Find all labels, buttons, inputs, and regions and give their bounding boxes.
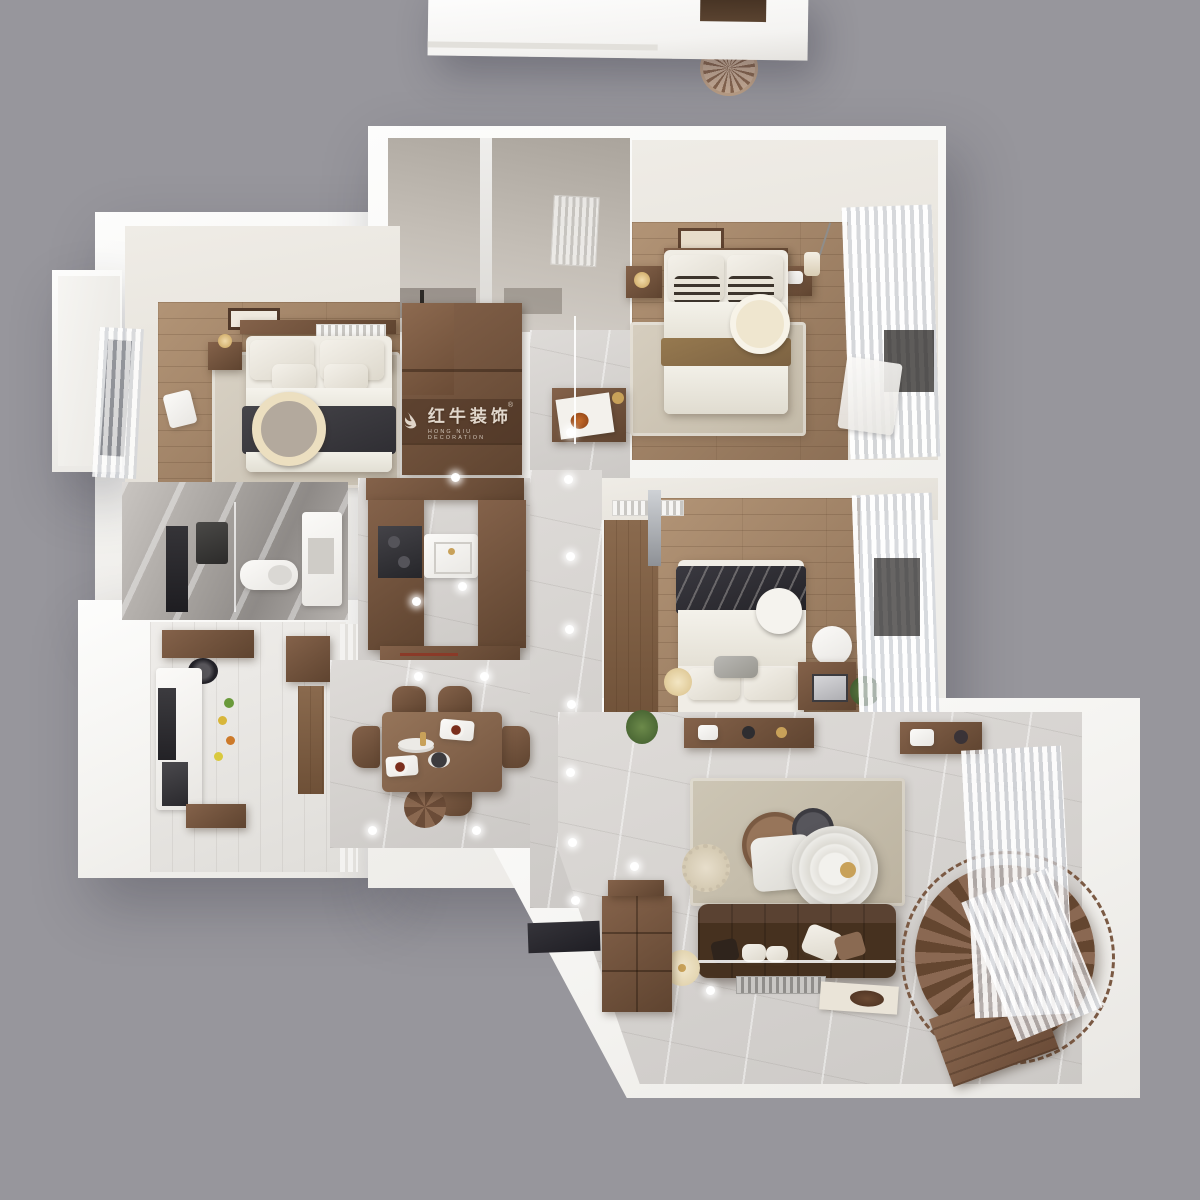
bedroom1-bed <box>244 334 394 474</box>
dining-chair <box>392 686 426 714</box>
downlight-dot <box>568 838 577 847</box>
downlight-dot <box>472 826 481 835</box>
gold-faucet <box>448 548 455 555</box>
light-streak <box>698 960 896 963</box>
downlight-dot <box>412 597 421 606</box>
brand-watermark: 红牛装饰® HONG NIU DECORATION <box>402 399 522 443</box>
shelf-divider <box>636 896 638 1012</box>
hanging-lamp-cord <box>574 316 576 444</box>
dining-chair <box>502 726 530 768</box>
shelf-red-bar <box>400 653 458 656</box>
utility-tall-cabinet <box>298 686 324 794</box>
nightstand-photo <box>786 271 803 284</box>
shelf-cabinet-top-box <box>608 880 664 896</box>
console-art-print <box>555 392 614 439</box>
dark-doormat <box>527 921 600 953</box>
dinner-plate <box>392 759 408 775</box>
bench-gold-decor <box>776 727 787 738</box>
bedroom2-floor-lamp <box>664 668 692 696</box>
utility-right-cabinet <box>286 636 330 682</box>
fruit-green <box>224 698 234 708</box>
bathroom-window <box>166 526 188 612</box>
burner <box>398 556 410 568</box>
fruit-orange <box>226 736 235 745</box>
downlight-dot <box>458 582 467 591</box>
downlight-dot <box>414 672 423 681</box>
downlight-dot <box>566 428 575 437</box>
laptop <box>812 674 848 702</box>
art-mat-brown-motif <box>849 989 884 1007</box>
sink-basin <box>434 542 472 574</box>
bed-striped-pillow <box>674 276 720 304</box>
wardrobe-door-lines <box>402 443 522 445</box>
round-swivel-chair <box>792 826 878 912</box>
kitchen-sink <box>424 534 478 578</box>
fruit-yellow <box>218 716 227 725</box>
sofa <box>698 904 896 978</box>
watermark-brand-en: HONG NIU DECORATION <box>428 429 522 441</box>
dining-chair-round <box>404 786 446 828</box>
shower-glass-line <box>234 502 236 612</box>
vanity-counter <box>308 538 334 574</box>
utility-window <box>158 688 176 760</box>
art-orange-motif <box>570 412 590 430</box>
wardrobe-top-panel <box>402 303 454 395</box>
downlight-dot <box>706 986 715 995</box>
master-bed <box>664 250 788 414</box>
burner <box>388 536 400 548</box>
registered-mark: ® <box>508 402 513 409</box>
console-dark-ball <box>954 730 968 744</box>
console-vase <box>612 392 624 404</box>
bay-window-curtain <box>92 327 144 479</box>
bed-round-pillow <box>756 588 802 634</box>
upper-stairwell-opening <box>700 0 766 22</box>
floorplan-render: 红牛装饰® HONG NIU DECORATION <box>0 0 1200 1200</box>
desk-chair <box>812 626 852 666</box>
upper-floor-slab <box>428 0 809 61</box>
dining-chair <box>352 726 380 768</box>
bedroom1-table-lamp <box>218 334 232 348</box>
bathroom-vanity <box>302 512 342 606</box>
downlight-dot <box>564 475 573 484</box>
entry-partition-wall <box>480 138 492 326</box>
gold-bottle <box>420 732 426 746</box>
hongniu-bull-logo-icon <box>402 410 420 432</box>
dining-chair <box>438 686 472 714</box>
bench-bowl <box>742 726 755 739</box>
watermark-brand-cn: 红牛装饰 <box>428 407 512 426</box>
bed-round-pillow <box>730 294 790 354</box>
dinner-plate <box>448 722 464 738</box>
shelf-cabinet <box>602 896 672 1012</box>
downlight-dot <box>451 473 460 482</box>
tufted-pouf <box>682 844 730 892</box>
fridge <box>162 762 188 806</box>
side-console-desk <box>900 722 982 754</box>
downlight-dot <box>566 768 575 777</box>
plate-stack <box>398 738 434 750</box>
master-curtain-drape <box>837 356 902 435</box>
bench-book <box>698 725 718 740</box>
shower-fixture <box>196 522 228 564</box>
kitchen-right-counter <box>478 500 526 648</box>
hall-wardrobe: 红牛装饰® HONG NIU DECORATION <box>402 303 522 475</box>
toilet <box>240 560 298 590</box>
console-tray <box>910 729 934 746</box>
downlight-dot <box>571 896 580 905</box>
entry-door-mat <box>550 195 600 267</box>
wardrobe-shelf-line <box>402 369 522 372</box>
fruit-lemon <box>214 752 223 761</box>
upper-slab-edge <box>428 41 658 50</box>
downlight-dot <box>566 552 575 561</box>
downlight-dot <box>565 625 574 634</box>
bathroom <box>122 482 348 620</box>
kitchen-top-cabinet <box>366 478 524 500</box>
bed-round-pillow <box>252 392 326 466</box>
pendant-lamp <box>804 252 820 276</box>
bedroom2-window-gap <box>874 558 920 636</box>
living-bench-console <box>684 718 814 748</box>
hall-plant <box>626 710 658 744</box>
striped-doormat <box>736 976 826 994</box>
downlight-dot <box>630 862 639 871</box>
bedroom2-mirror-strip <box>648 490 661 566</box>
kitchen-cooktop <box>378 526 422 578</box>
flat-art-mat <box>819 981 899 1014</box>
bed-pillow-small <box>272 364 316 390</box>
utility-top-cabinet <box>162 630 254 658</box>
bed-pillow-small <box>324 364 368 390</box>
downlight-dot <box>480 672 489 681</box>
bed-pillow-gray <box>714 656 758 678</box>
downlight-dot <box>368 826 377 835</box>
utility-lower-cabinet <box>186 804 246 828</box>
dark-bowl <box>428 752 450 768</box>
bed-foot-fold <box>664 366 788 414</box>
toilet-bowl <box>268 565 292 585</box>
downlight-dot <box>567 700 576 709</box>
swivel-gold-cushion <box>840 862 856 878</box>
dining-table <box>382 712 502 792</box>
master-table-lamp <box>634 272 650 288</box>
lamp-gold-dot <box>678 964 686 972</box>
